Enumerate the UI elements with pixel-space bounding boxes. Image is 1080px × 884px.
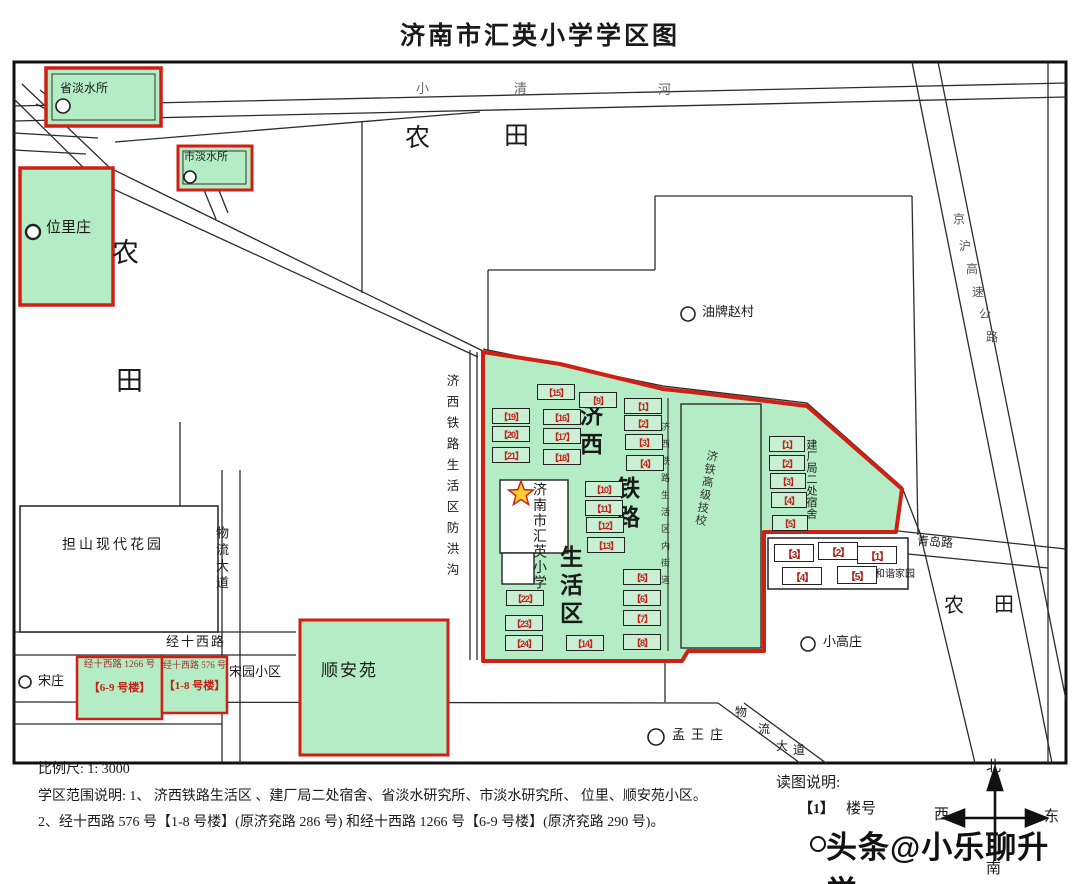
school-annex-block xyxy=(502,553,534,584)
danshan-garden-block xyxy=(20,506,218,632)
jinghu-expressway-label: 高 xyxy=(966,263,978,275)
mengwangzhuang-label: 孟王庄 xyxy=(672,728,729,741)
xiaoqing-river-label: 小 xyxy=(416,82,429,95)
compass-north-label: 北 xyxy=(986,760,1001,775)
shunanyuan-label: 顺安苑 xyxy=(321,662,378,679)
building-box-district: 【13】 xyxy=(587,537,625,553)
farmland-label-left: 田 xyxy=(116,368,143,395)
building-box-district: 【14】 xyxy=(566,635,604,651)
youpai-zhaocun-label: 油牌赵村 xyxy=(702,305,754,318)
parcel-1266-address: 经十西路 1266 号 xyxy=(79,661,160,671)
farmland-label-southeast: 农 xyxy=(944,596,964,616)
building-box-dormitory: 【1】 xyxy=(769,436,805,452)
songzhuang-label: 宋庄 xyxy=(38,674,64,687)
provincial-freshwater-label: 省淡水所 xyxy=(60,82,108,94)
watermark-dot xyxy=(810,836,826,852)
legend-building-number: 【1】 xyxy=(799,803,834,817)
building-box-district: 【10】 xyxy=(585,481,623,497)
flood-ditch-label: 济西铁路生活区防洪沟 xyxy=(445,374,458,584)
jinghu-expressway-label: 京 xyxy=(953,213,965,225)
legend-title: 读图说明: xyxy=(776,776,840,791)
parcel-576-buildings: 【1-8 号楼】 xyxy=(163,681,226,692)
building-box-district: 【5】 xyxy=(623,569,661,585)
building-box-district: 【19】 xyxy=(492,408,530,424)
building-box-district: 【8】 xyxy=(623,634,661,650)
jinghu-expressway-label: 速 xyxy=(972,286,984,298)
building-box-district: 【21】 xyxy=(492,447,530,463)
building-box-district: 【3】 xyxy=(625,434,663,450)
farmland-label-southeast: 田 xyxy=(994,595,1014,615)
building-box-district: 【12】 xyxy=(586,517,624,533)
building-box-district: 【24】 xyxy=(505,635,543,651)
wuliu-avenue-diagonal-label: 道 xyxy=(793,744,805,756)
jixi-area-label: 活 xyxy=(560,574,583,597)
building-box-dormitory: 【5】 xyxy=(772,515,808,531)
weilizhuang-label: 位里庄 xyxy=(46,221,91,236)
building-box-district: 【16】 xyxy=(543,409,581,425)
building-box-district: 【22】 xyxy=(506,590,544,606)
building-box-district: 【4】 xyxy=(626,455,664,471)
building-box-district: 【11】 xyxy=(585,500,623,516)
wuliu-avenue-diagonal-label: 物 xyxy=(735,706,747,718)
building-box-district: 【2】 xyxy=(624,415,662,431)
building-box-harmony: 【4】 xyxy=(782,567,822,585)
farmland-label-top: 农 xyxy=(405,126,430,151)
jinghu-expressway-label: 沪 xyxy=(959,240,971,252)
watermark: 头条@小乐聊升学 xyxy=(826,822,1080,884)
wuliu-avenue-label: 物流大道 xyxy=(215,526,228,592)
building-box-district: 【15】 xyxy=(537,384,575,400)
jinghu-expressway-label: 路 xyxy=(986,331,998,343)
building-box-dormitory: 【2】 xyxy=(769,455,805,471)
jixi-area-label: 区 xyxy=(560,602,583,625)
building-box-dormitory: 【4】 xyxy=(771,492,807,508)
building-box-dormitory: 【3】 xyxy=(770,473,806,489)
jixi-area-label: 西 xyxy=(580,433,603,456)
building-box-district: 【18】 xyxy=(543,449,581,465)
map-canvas xyxy=(0,0,1080,884)
wuliu-avenue-diagonal-label: 大 xyxy=(776,740,788,752)
school-district-map: 济南市汇英小学学区图 xyxy=(0,0,1080,884)
compass-west-label: 西 xyxy=(934,808,949,823)
xiaoqing-river-label: 河 xyxy=(658,83,671,96)
building-box-district: 【6】 xyxy=(623,590,661,606)
building-box-harmony: 【5】 xyxy=(837,566,877,584)
jixi-area-label: 生 xyxy=(560,546,583,569)
building-box-district: 【20】 xyxy=(492,426,530,442)
farmland-label-left: 农 xyxy=(112,240,139,267)
building-box-district: 【7】 xyxy=(623,610,661,626)
district-note-line1: 学区范围说明: 1、 济西铁路生活区 、建厂局二处宿舍、省淡水研究所、市淡水研究… xyxy=(38,790,707,804)
songyuan-label: 宋园小区 xyxy=(229,665,281,678)
hexie-jiayuan-label: 和谐家园 xyxy=(875,570,915,580)
legend-building-text: 楼号 xyxy=(846,802,876,817)
school-name-label: 济南市汇英小学 xyxy=(531,482,545,591)
building-box-district: 【1】 xyxy=(624,398,662,414)
building-box-district: 【23】 xyxy=(505,615,543,631)
jinghu-expressway-label: 公 xyxy=(979,308,991,320)
building-box-harmony: 【2】 xyxy=(818,542,858,560)
building-box-harmony: 【1】 xyxy=(857,546,897,564)
xiaogaozhuang-label: 小高庄 xyxy=(823,635,862,648)
building-box-district: 【9】 xyxy=(579,392,617,408)
wuliu-avenue-diagonal-label: 流 xyxy=(758,723,770,735)
danshan-garden-label: 担山现代花园 xyxy=(62,539,164,553)
xiaoqing-river-label: 清 xyxy=(514,82,527,95)
city-freshwater-label: 市淡水所 xyxy=(184,152,228,163)
farmland-label-top: 田 xyxy=(504,124,529,149)
qingdao-road-label: 青岛路 xyxy=(917,535,954,549)
building-box-district: 【17】 xyxy=(543,428,581,444)
district-note-line2: 2、经十西路 576 号【1-8 号楼】(原济兖路 286 号) 和经十西路 1… xyxy=(38,816,664,830)
parcel-1266-buildings: 【6-9 号楼】 xyxy=(79,683,160,694)
jingshixi-road-label: 经十西路 xyxy=(166,635,226,648)
parcel-576-address: 经十西路 576 号 xyxy=(163,661,226,670)
scale-text: 比例尺: 1: 3000 xyxy=(38,763,130,777)
building-box-harmony: 【3】 xyxy=(774,544,814,562)
